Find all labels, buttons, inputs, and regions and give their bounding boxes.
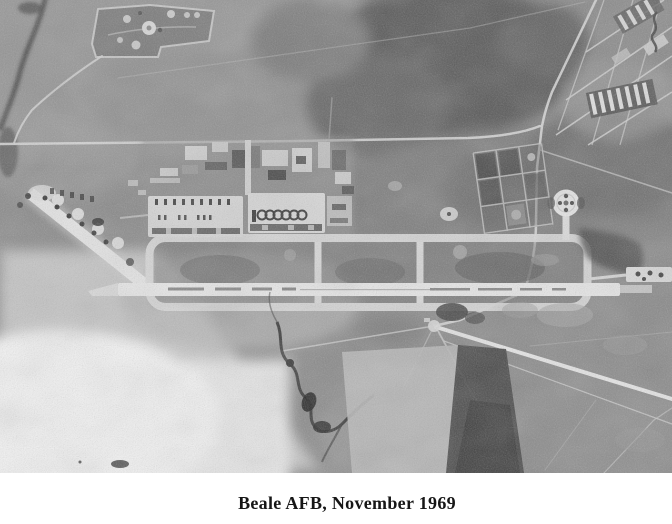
film-grain-overlay — [0, 0, 672, 473]
aerial-photo-beale-afb — [0, 0, 672, 473]
photo-caption: Beale AFB, November 1969 — [11, 493, 672, 514]
book-page: Beale AFB, November 1969 — [0, 0, 672, 524]
aerial-photo-figure — [0, 0, 672, 473]
